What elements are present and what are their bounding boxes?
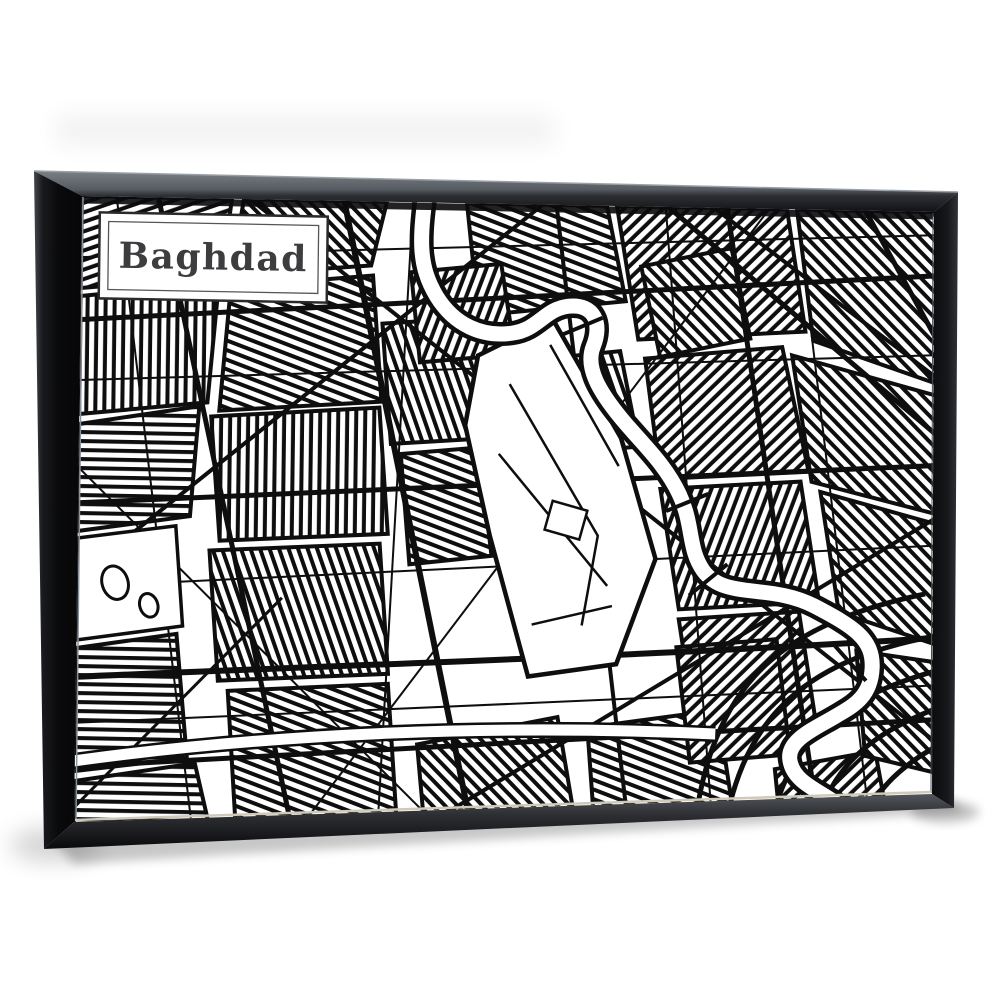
frame-left-face <box>34 171 82 849</box>
map-title-label: Baghdad <box>99 212 328 302</box>
park-area <box>76 524 183 642</box>
map-title-text: Baghdad <box>118 235 308 281</box>
frame-right-face <box>932 192 958 808</box>
product-photo: Baghdad <box>0 0 1000 1000</box>
framed-map-artwork: Baghdad <box>0 0 1000 1000</box>
city-map-canvas: Baghdad <box>33 155 982 893</box>
